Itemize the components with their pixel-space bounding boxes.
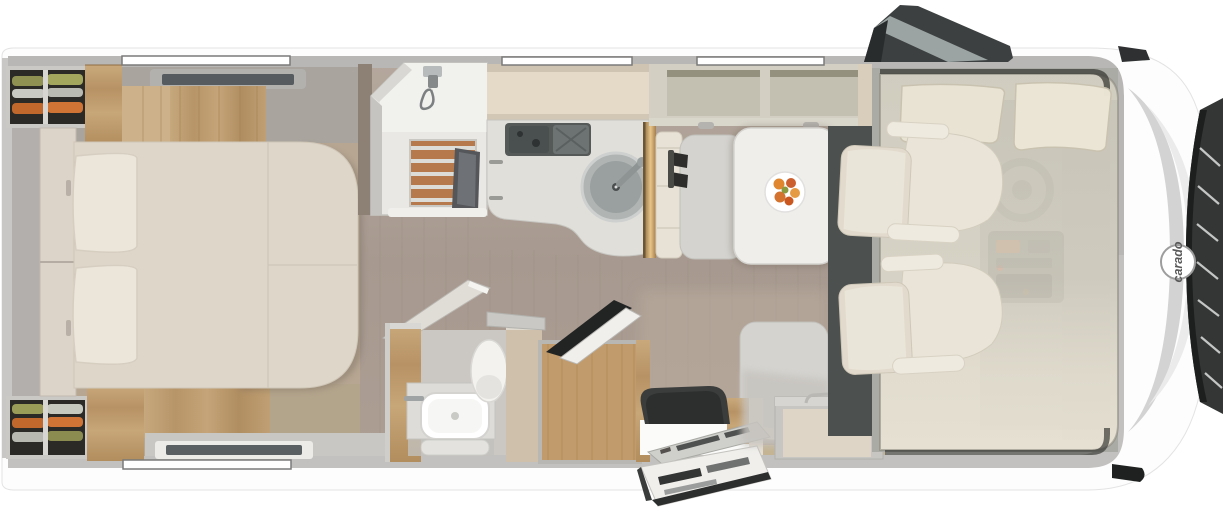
svg-text:carado: carado [1171, 241, 1185, 282]
